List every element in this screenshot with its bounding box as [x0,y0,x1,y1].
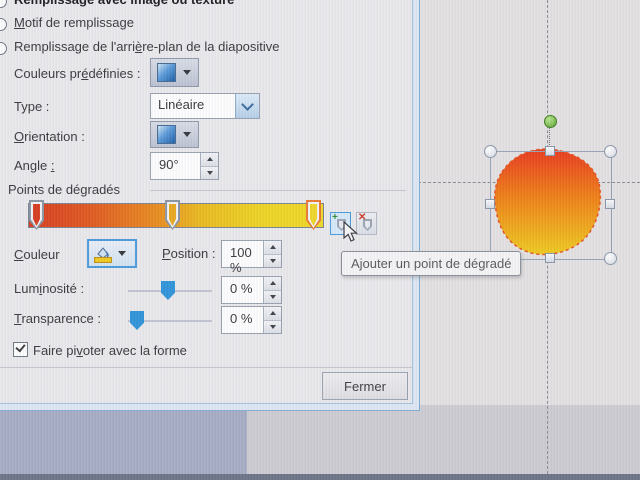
spin-down-icon[interactable] [201,167,218,180]
spin-up-icon[interactable] [264,241,281,255]
remove-gradient-stop-button[interactable]: ✕ [356,212,377,235]
plus-icon: + [332,213,338,223]
spin-down-icon[interactable] [264,255,281,268]
transparency-spin-buttons[interactable] [263,307,281,333]
angle-value: 90° [151,153,200,179]
rotate-with-shape-label[interactable]: Faire pivoter avec la forme [33,343,187,358]
radio-background-fill-label[interactable]: Remplissage de l'arrière-plan de la diap… [14,39,280,54]
resize-handle-bottom[interactable] [545,253,555,263]
chevron-down-icon [241,98,254,111]
preset-colors-label: Couleurs prédéfinies : [14,66,140,81]
gradient-swatch-icon [157,63,176,82]
rotate-with-shape-checkbox[interactable] [13,342,28,357]
brightness-label: Luminosité : [14,281,84,296]
type-value: Linéaire [151,94,235,118]
type-label: Type : [14,99,49,114]
brightness-slider-thumb[interactable] [161,281,175,300]
brightness-spin-buttons[interactable] [263,277,281,303]
resize-handle-bottom-right[interactable] [604,252,617,265]
caret-down-icon [118,251,126,256]
resize-handle-top-right[interactable] [604,145,617,158]
gradient-stop-47[interactable] [165,200,180,230]
spin-up-icon[interactable] [264,307,281,321]
type-combo-button[interactable] [235,94,259,118]
spin-down-icon[interactable] [264,291,281,304]
brightness-spinner[interactable]: 0 % [221,276,282,304]
radio-background-fill[interactable] [0,42,7,55]
resize-handle-left[interactable] [485,199,495,209]
orientation-dropdown[interactable] [150,121,199,148]
spin-up-icon[interactable] [201,153,218,167]
paint-bucket-icon [94,245,112,263]
type-combobox[interactable]: Linéaire [150,93,260,119]
slide-background [247,405,640,475]
angle-spinner[interactable]: 90° [150,152,219,180]
format-shape-dialog: Remplissage avec image ou texture Motif … [0,0,413,404]
radio-pattern-fill-label[interactable]: Motif de remplissage [14,15,134,30]
spin-up-icon[interactable] [264,277,281,291]
angle-label: Angle : [14,158,55,173]
orientation-label: Orientation : [14,129,85,144]
workspace-background [0,405,247,475]
caret-down-icon [183,70,191,75]
angle-spin-buttons[interactable] [200,153,218,179]
x-icon: ✕ [358,213,366,223]
screen: Remplissage avec image ou texture Motif … [0,0,640,480]
gradient-stop-0[interactable] [29,200,44,230]
spin-down-icon[interactable] [264,321,281,334]
rotate-handle[interactable] [544,115,557,128]
resize-handle-top[interactable] [545,146,555,156]
preset-colors-dropdown[interactable] [150,58,199,87]
transparency-value: 0 % [222,307,263,333]
position-spinner[interactable]: 100 % [221,240,282,268]
mouse-cursor [343,221,359,243]
radio-picture-fill-label[interactable]: Remplissage avec image ou texture [14,0,234,7]
position-value: 100 % [222,241,263,267]
brightness-value: 0 % [222,277,263,303]
gradient-bar[interactable] [28,203,324,228]
position-label: Position : [162,246,215,261]
transparency-label: Transparence : [14,311,101,326]
footer-divider [0,367,412,368]
gradient-stop-100-selected[interactable] [306,200,321,230]
gradient-section-title: Points de dégradés [8,182,120,197]
resize-handle-right[interactable] [605,199,615,209]
taskbar-edge [0,474,640,480]
dialog-frame: Remplissage avec image ou texture Motif … [0,0,420,411]
current-color-bar [94,257,112,263]
tooltip: Ajouter un point de dégradé [341,251,521,276]
color-label: Couleur [14,247,60,262]
resize-handle-top-left[interactable] [484,145,497,158]
shape-selection-rect [490,151,612,260]
close-button[interactable]: Fermer [322,372,408,400]
section-divider [150,190,406,191]
orientation-swatch-icon [157,125,176,144]
position-spin-buttons[interactable] [263,241,281,267]
radio-pattern-fill[interactable] [0,18,7,31]
caret-down-icon [183,132,191,137]
checkmark-icon [15,342,25,353]
radio-picture-fill[interactable] [0,0,7,8]
stop-color-dropdown[interactable] [87,239,137,268]
transparency-spinner[interactable]: 0 % [221,306,282,334]
transparency-slider-thumb[interactable] [130,311,144,330]
